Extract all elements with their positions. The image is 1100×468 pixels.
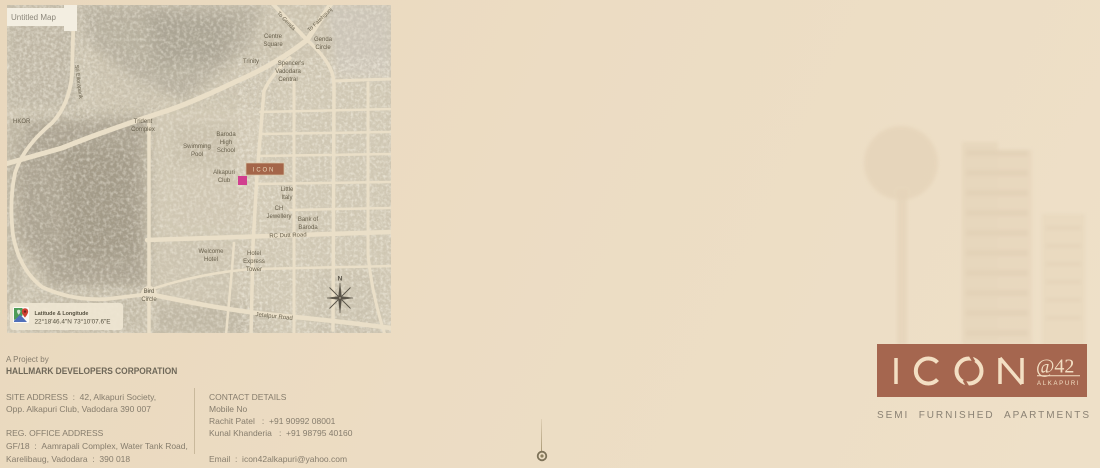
- svg-text:Latitude & Longitude: Latitude & Longitude: [35, 311, 89, 317]
- svg-text:Untitled Map: Untitled Map: [11, 13, 56, 22]
- svg-text:22°18'46.4"N 73°10'07.6"E: 22°18'46.4"N 73°10'07.6"E: [35, 318, 111, 326]
- svg-text:ALKAPURI: ALKAPURI: [1037, 381, 1080, 387]
- svg-text:@42: @42: [1036, 356, 1074, 378]
